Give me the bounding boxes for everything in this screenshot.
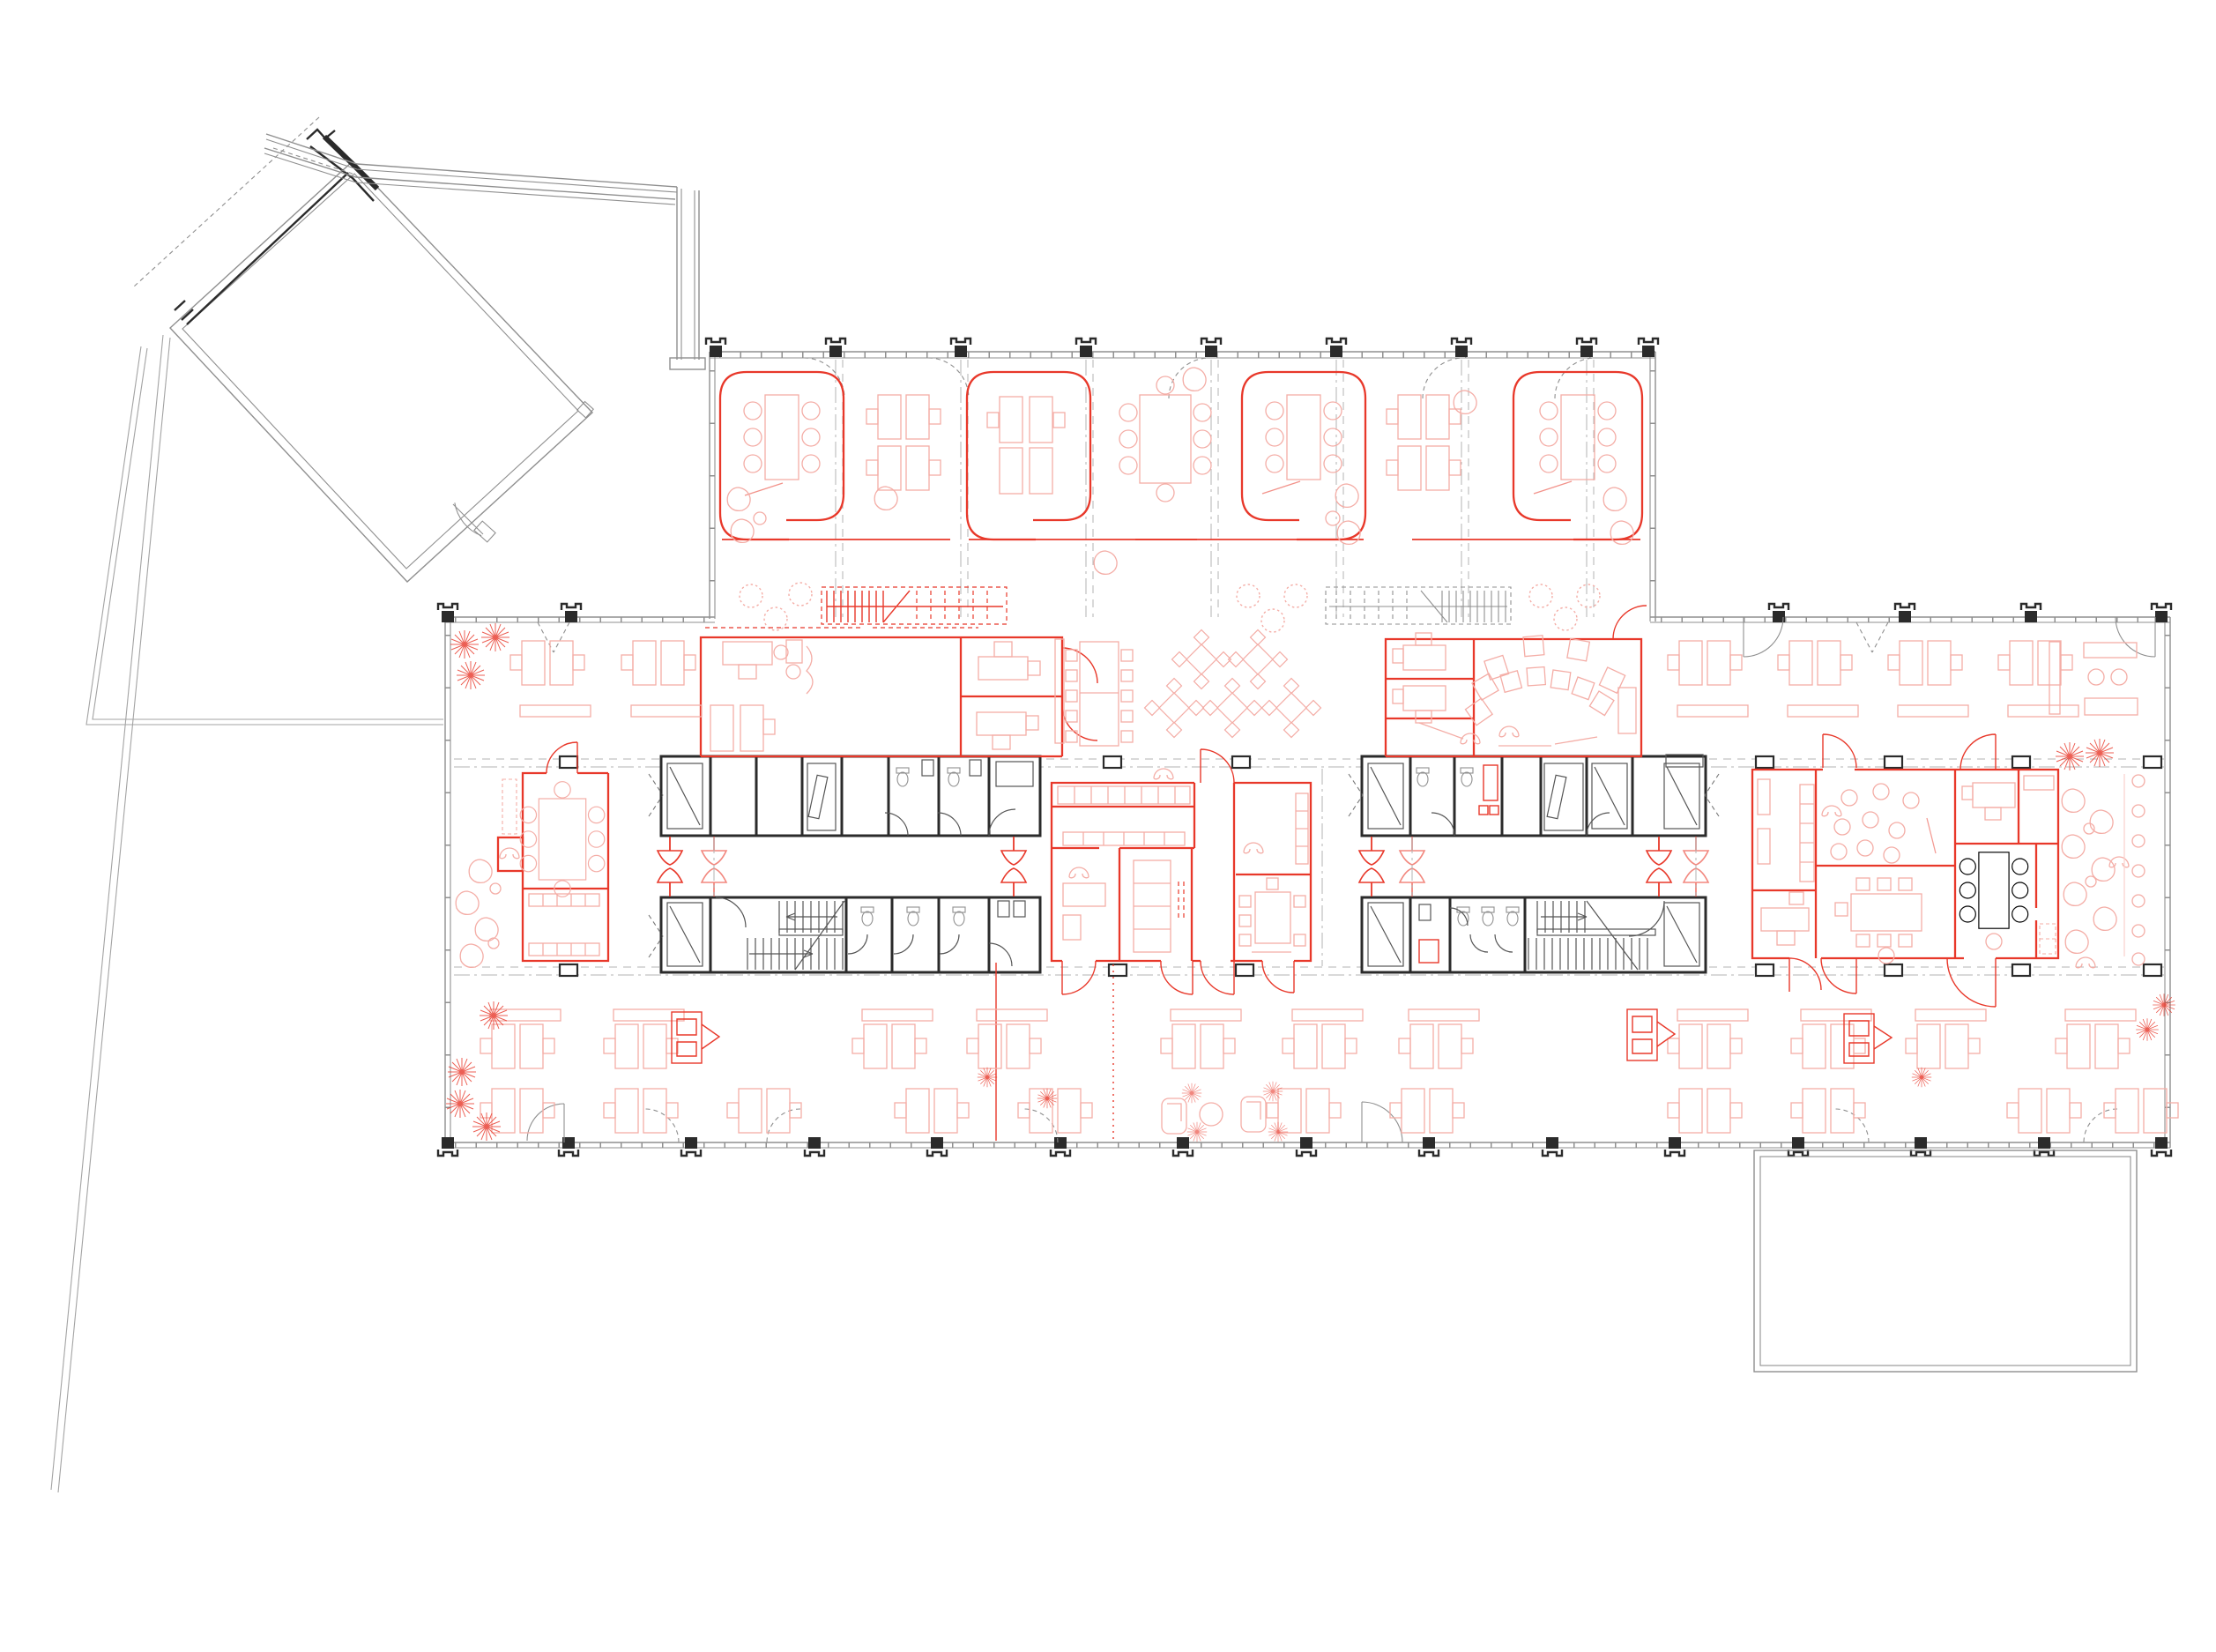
open-office-north-west (450, 623, 702, 717)
site-boundary-lines (51, 335, 443, 1492)
gallery-link (264, 134, 705, 369)
annex-door (451, 502, 495, 542)
south-lounge (1162, 1082, 1288, 1142)
core-west-curtains (658, 837, 1026, 897)
east-red-hub (1752, 734, 2145, 1007)
terrace-south-east (1754, 1150, 2137, 1372)
wing-stair-red (822, 587, 1007, 624)
lounge-east (2056, 739, 2145, 968)
wing-meeting-rooms (720, 372, 1642, 540)
core-east-curtains (1359, 837, 1708, 897)
cafe-zone (1055, 630, 1320, 746)
main-columns-top (438, 604, 2171, 622)
wing-furniture (727, 368, 1633, 632)
center-red-hub (996, 749, 1311, 1141)
floor-plan-sheet (0, 0, 2216, 1652)
core-west (649, 756, 1040, 972)
annex-building (134, 117, 593, 582)
main-building-shell (438, 604, 2171, 1156)
north-meeting-wing (706, 339, 1658, 632)
wing-columns (706, 339, 1658, 357)
north-east-red-rooms (1386, 606, 1647, 756)
main-columns-bottom (438, 1137, 2171, 1156)
shell-doors (527, 617, 2155, 1142)
floor-plan-drawing (0, 0, 2216, 1652)
open-office-south (446, 993, 2178, 1142)
west-red-meeting-room (456, 742, 608, 967)
wing-door-swings (804, 358, 1595, 398)
core-east (1349, 756, 1719, 972)
wing-stair-gray (1326, 587, 1511, 624)
printer-stations (672, 1009, 1892, 1063)
wing-gridlines (836, 360, 1594, 617)
north-west-red-offices (701, 628, 1097, 756)
